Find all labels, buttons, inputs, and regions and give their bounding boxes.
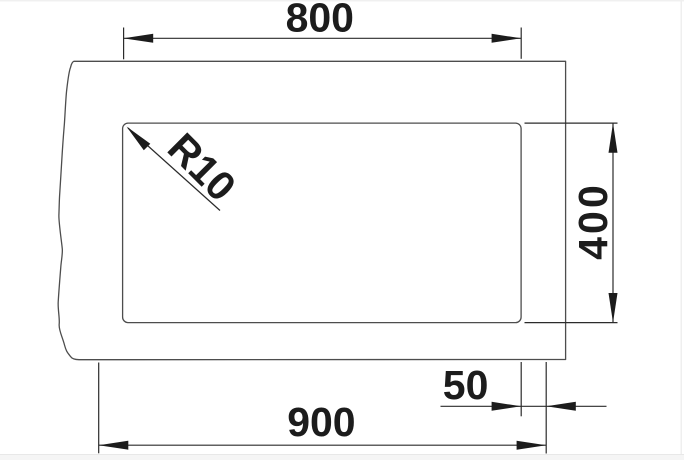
svg-text:400: 400: [570, 182, 616, 260]
svg-text:900: 900: [287, 399, 355, 445]
svg-text:50: 50: [443, 362, 489, 408]
svg-text:800: 800: [286, 0, 354, 41]
